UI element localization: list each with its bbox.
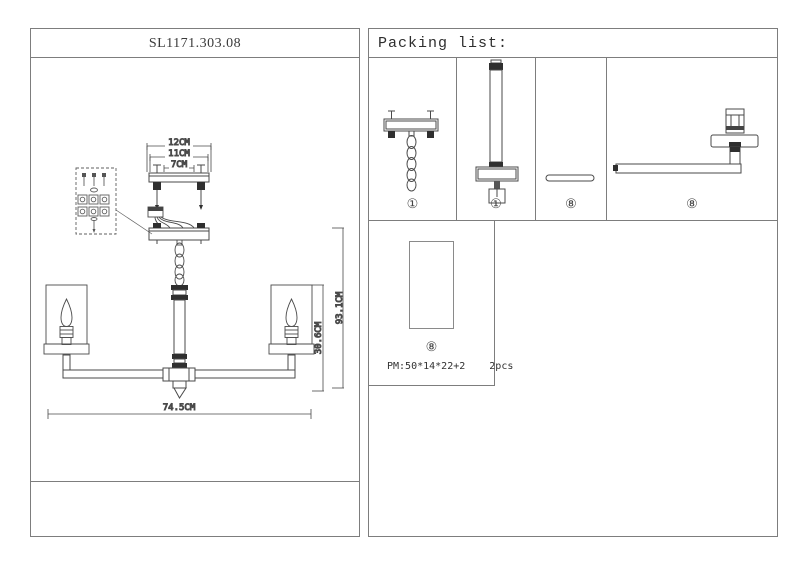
left-shade-drawing [44,285,89,354]
canopy-chain-part-drawing [369,58,457,220]
chandelier-technical-drawing: 12CM 11CM 7CM [31,58,361,481]
packing-box-size-label: PM:50*14*22+2 [387,361,465,372]
page-root: { "left_panel": { "title": "SL1171.303.0… [0,0,800,565]
packing-item-qty-label: ⑧ [607,197,777,212]
packing-item-cell-canopy: ① [369,58,457,220]
packing-item-qty-label: ⑧ [536,197,606,212]
glass-shade-part-drawing [409,241,454,329]
packing-item-cell-bar: ⑧ [536,58,607,220]
arm-part-drawing [607,58,777,220]
right-shade-drawing [269,285,314,354]
glass-shade-packing-box: ⑧ PM:50*14*22+2 2pcs [369,220,495,386]
packing-list-panel: Packing list: ① [368,28,778,537]
chain-drawing [175,240,184,286]
hardware-parts-box [76,168,152,234]
center-rod-part-drawing [457,58,536,220]
packing-item-cell-arm: ⑧ [607,58,777,220]
packing-item-qty-label: ① [369,197,456,212]
dim-74-5cm-label: 74.5CM [163,403,196,413]
dim-7cm-label: 7CM [171,160,188,170]
dim-11cm-label: 11CM [168,149,190,159]
packing-note: PM:50*14*22+2 2pcs [387,361,513,372]
dim-93-1cm-label: 93.1CM [335,291,345,324]
panel-divider [31,481,359,482]
hub-finial-drawing [163,368,195,398]
flat-bar-part-drawing [536,58,607,220]
packing-list-header: Packing list: [369,29,777,58]
packing-item-qty-label: ① [457,197,535,212]
packing-item-qty-label: ⑧ [369,340,494,355]
dim-30-6cm-label: 30.6CM [314,321,324,354]
product-drawing-panel: SL1171.303.08 12CM 11CM 7CM [30,28,360,537]
packing-item-cell-rod: ① [457,58,536,220]
packing-box-qty-label: 2pcs [489,361,513,372]
dim-12cm-label: 12CM [168,138,190,148]
mounting-bracket-drawing [149,165,209,210]
canopy-drawing [149,223,209,244]
product-code-title: SL1171.303.08 [31,29,359,58]
rod-drawing [171,285,188,368]
packing-items-row: ① ① ⑧ [369,58,777,221]
